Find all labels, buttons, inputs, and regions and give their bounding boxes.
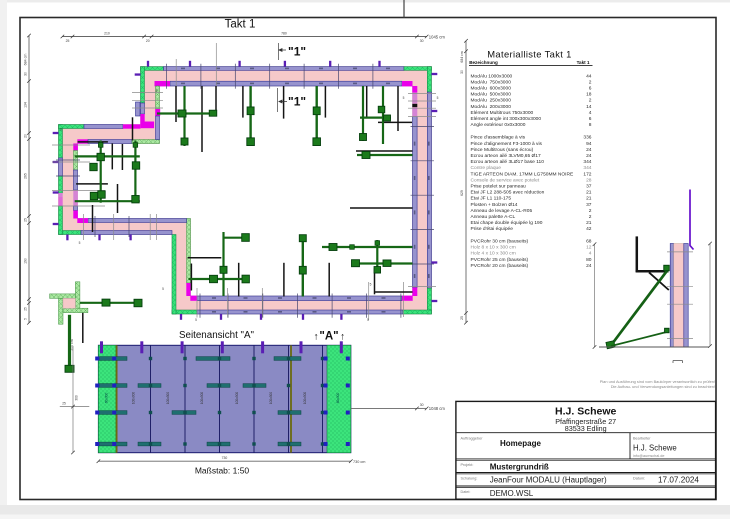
svg-text:Elément Multitrous 750x3000: Elément Multitrous 750x3000 — [471, 110, 534, 116]
svg-text:629: 629 — [460, 190, 464, 196]
svg-text:8: 8 — [589, 122, 592, 128]
svg-text:PVCRohr 30 cm (bauseits): PVCRohr 30 cm (bauseits) — [471, 239, 529, 245]
svg-text:21: 21 — [586, 196, 592, 202]
svg-text:Etai JF L1 110-175: Etai JF L1 110-175 — [471, 196, 512, 202]
svg-text:Takt 1: Takt 1 — [225, 19, 256, 31]
svg-text:6: 6 — [589, 86, 592, 92]
svg-text:100x300: 100x300 — [235, 392, 239, 404]
svg-text:Prise d'étai équipée: Prise d'étai équipée — [471, 226, 514, 232]
svg-text:28: 28 — [586, 177, 592, 183]
svg-text:80: 80 — [586, 257, 592, 263]
svg-text:Maßstab: 1:50: Maßstab: 1:50 — [195, 466, 250, 476]
svg-text:190: 190 — [24, 258, 28, 264]
svg-text:1048 cm: 1048 cm — [429, 406, 446, 411]
svg-text:Etai chape double équipée lg 1: Etai chape double équipée lg 190 — [471, 220, 543, 226]
svg-text:5: 5 — [367, 318, 369, 322]
svg-text:Pince d'alignement F3-1000 à v: Pince d'alignement F3-1000 à vis — [471, 141, 543, 147]
svg-text:Homepage: Homepage — [500, 439, 541, 448]
svg-text:↑: ↑ — [314, 332, 319, 343]
svg-text:60x300: 60x300 — [105, 393, 109, 404]
svg-text:PVCRohr 25 cm (bauseits): PVCRohr 25 cm (bauseits) — [471, 257, 529, 263]
svg-text:Anneau palette A-CL: Anneau palette A-CL — [471, 214, 516, 220]
svg-text:Materialliste Takt 1: Materialliste Takt 1 — [487, 49, 571, 60]
svg-text:25: 25 — [24, 307, 28, 311]
svg-text:344: 344 — [583, 165, 591, 171]
svg-text:21: 21 — [586, 190, 592, 196]
svg-text:17.07.2024: 17.07.2024 — [658, 475, 699, 484]
svg-text:ModAlu 750x3000: ModAlu 750x3000 — [471, 79, 512, 85]
svg-text:Projekt:: Projekt: — [461, 463, 474, 467]
svg-text:Prise potelet sur panneau: Prise potelet sur panneau — [471, 184, 527, 190]
svg-text:Pince d'assemblage à vis: Pince d'assemblage à vis — [471, 135, 526, 141]
svg-text:ModAlu 600x3000: ModAlu 600x3000 — [471, 86, 512, 92]
svg-text:Pince Multitrous (sans écrou): Pince Multitrous (sans écrou) — [471, 147, 534, 153]
svg-text:684 cm: 684 cm — [460, 51, 464, 62]
svg-text:5: 5 — [60, 128, 62, 132]
svg-text:Seitenansicht "A": Seitenansicht "A" — [179, 330, 255, 341]
svg-text:24: 24 — [586, 147, 592, 153]
svg-text:"A": "A" — [319, 331, 338, 343]
svg-text:344: 344 — [583, 159, 591, 165]
svg-text:Plosten + Bolzen Ø14: Plosten + Bolzen Ø14 — [471, 202, 518, 208]
svg-text:100x300: 100x300 — [269, 392, 273, 404]
svg-text:12: 12 — [586, 245, 592, 251]
svg-text:83533 Edling: 83533 Edling — [565, 424, 607, 433]
svg-text:H.J. Schewe: H.J. Schewe — [555, 406, 616, 418]
svg-text:↑: ↑ — [340, 332, 345, 343]
svg-text:5: 5 — [195, 318, 197, 322]
svg-text:18: 18 — [586, 92, 592, 98]
svg-text:Anneau de levage A-CL-R05: Anneau de levage A-CL-R05 — [471, 208, 533, 214]
svg-text:20: 20 — [146, 39, 150, 43]
svg-text:Ecrou arteon ailé 3LVM0,65 Ø17: Ecrou arteon ailé 3LVM0,65 Ø17 — [471, 153, 541, 159]
svg-text:H.J. Schewe: H.J. Schewe — [633, 444, 677, 453]
svg-text:14: 14 — [586, 104, 592, 110]
svg-text:25: 25 — [62, 402, 66, 406]
svg-text:Datum:: Datum: — [633, 477, 645, 481]
svg-text:24: 24 — [586, 263, 592, 269]
svg-text:DEMO.WSL: DEMO.WSL — [490, 489, 534, 498]
svg-text:JeanFour MODALU (Hauptlager): JeanFour MODALU (Hauptlager) — [490, 475, 607, 484]
svg-text:100x300: 100x300 — [132, 392, 136, 404]
svg-text:Bezeichnung: Bezeichnung — [469, 60, 498, 65]
svg-text:Elément angle int 300x300x3000: Elément angle int 300x300x3000 — [471, 116, 542, 122]
svg-text:300: 300 — [75, 395, 79, 401]
svg-text:68: 68 — [586, 239, 592, 245]
svg-text:Takt 1: Takt 1 — [577, 60, 590, 65]
svg-text:Holz 8 x 10 x 300 cm: Holz 8 x 10 x 300 cm — [471, 245, 516, 251]
svg-text:5: 5 — [79, 241, 81, 245]
svg-text:2: 2 — [589, 214, 592, 220]
svg-text:100x300: 100x300 — [303, 392, 307, 404]
svg-text:Console de service avec potele: Console de service avec potelet — [471, 177, 540, 183]
svg-text:5: 5 — [370, 283, 372, 287]
svg-text:Die Aufbau- und Verwendungsanl: Die Aufbau- und Verwendungsanleitungen s… — [611, 384, 715, 389]
svg-text:25: 25 — [66, 39, 70, 43]
svg-text:Schalung:: Schalung: — [461, 477, 478, 481]
svg-text:ModAlu 200x3000: ModAlu 200x3000 — [471, 104, 512, 110]
svg-text:Contre plaque: Contre plaque — [471, 165, 502, 171]
svg-text:265: 265 — [24, 173, 28, 179]
svg-text:24: 24 — [586, 153, 592, 159]
svg-text:4: 4 — [589, 251, 592, 257]
svg-text:780: 780 — [281, 32, 287, 36]
svg-text:37: 37 — [586, 202, 592, 208]
svg-text:172: 172 — [583, 171, 591, 177]
svg-text:Bearbeiter: Bearbeiter — [633, 437, 651, 441]
svg-text:100x300: 100x300 — [200, 392, 204, 404]
svg-text:Angle extérieur 0x0x3000: Angle extérieur 0x0x3000 — [471, 122, 526, 128]
svg-text:100x300: 100x300 — [166, 392, 170, 404]
svg-text:210: 210 — [104, 32, 110, 36]
svg-text:730: 730 — [222, 456, 228, 460]
svg-text:42: 42 — [586, 226, 592, 232]
svg-text:730 cm: 730 cm — [353, 460, 365, 464]
svg-text:TIGE ARTEON DIAM. 17MM LG750MM: TIGE ARTEON DIAM. 17MM LG750MM NOIRE — [471, 171, 574, 177]
svg-text:"1": "1" — [288, 95, 306, 109]
svg-text:30: 30 — [420, 403, 424, 407]
svg-text:134: 134 — [24, 102, 28, 108]
svg-text:21: 21 — [586, 220, 592, 226]
svg-text:5: 5 — [437, 96, 439, 100]
svg-text:6: 6 — [589, 116, 592, 122]
svg-text:Datei:: Datei: — [461, 490, 471, 494]
svg-text:25: 25 — [24, 218, 28, 222]
svg-text:1045 cm: 1045 cm — [429, 34, 446, 39]
svg-text:30: 30 — [460, 70, 464, 74]
svg-text:info@aumschal.de: info@aumschal.de — [633, 454, 665, 458]
svg-text:2: 2 — [589, 208, 592, 214]
svg-text:PVCRohr 20 cm (bauseits): PVCRohr 20 cm (bauseits) — [471, 263, 529, 269]
svg-text:30: 30 — [420, 39, 424, 43]
svg-text:336: 336 — [583, 135, 591, 141]
svg-text:5: 5 — [403, 96, 405, 100]
svg-text:5: 5 — [24, 318, 28, 320]
svg-text:Auftraggeber: Auftraggeber — [461, 437, 484, 441]
svg-text:Mustergrundriß: Mustergrundriß — [490, 462, 549, 471]
svg-text:94: 94 — [586, 141, 592, 147]
svg-text:ModAlu 500x3000: ModAlu 500x3000 — [471, 92, 512, 98]
svg-text:20: 20 — [24, 134, 28, 138]
svg-text:"1": "1" — [288, 45, 306, 59]
svg-text:ModAlu 250x3000: ModAlu 250x3000 — [471, 98, 512, 104]
svg-text:Ecrou arteon ailé 3LØ17 base 1: Ecrou arteon ailé 3LØ17 base 110 — [471, 159, 545, 165]
svg-text:30: 30 — [24, 72, 28, 76]
svg-text:2: 2 — [589, 98, 592, 104]
svg-text:37: 37 — [586, 184, 592, 190]
svg-text:Etai JF L2 288-505 avec réduct: Etai JF L2 288-505 avec réduction — [471, 190, 545, 196]
svg-text:4: 4 — [589, 110, 592, 116]
svg-text:5: 5 — [156, 89, 158, 93]
svg-text:ModAlu 1000x3000: ModAlu 1000x3000 — [471, 73, 513, 79]
svg-text:Holz 4 x 10 x 300 cm: Holz 4 x 10 x 300 cm — [471, 251, 516, 257]
svg-text:60x300: 60x300 — [336, 393, 340, 404]
svg-text:5: 5 — [162, 287, 164, 291]
svg-text:684 cm: 684 cm — [24, 54, 28, 66]
svg-text:2: 2 — [589, 79, 592, 85]
svg-text:44: 44 — [586, 73, 592, 79]
svg-text:25: 25 — [460, 316, 464, 320]
